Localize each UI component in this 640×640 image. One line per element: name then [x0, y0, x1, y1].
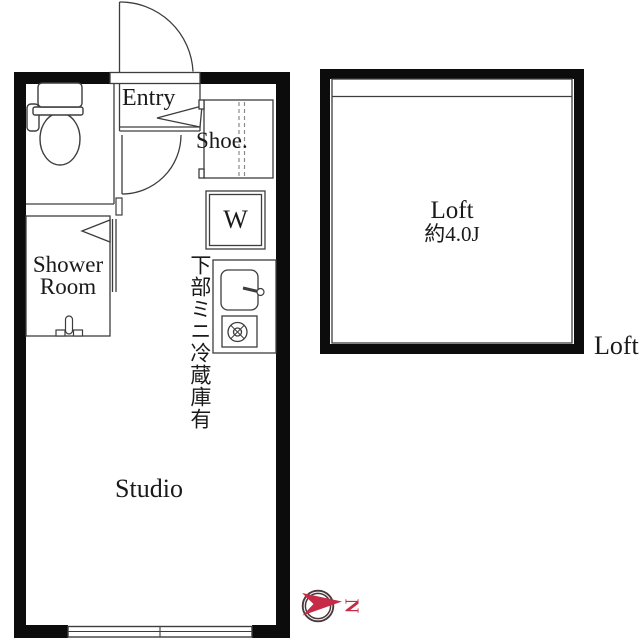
shower-direction-arrow-icon — [82, 220, 110, 242]
compass-icon: N — [302, 591, 363, 622]
wall-top-left — [14, 72, 110, 84]
shower-mixer — [66, 316, 73, 334]
toilet-tank — [38, 83, 82, 107]
loft-wall-right — [574, 69, 584, 354]
loft-name: Loft — [372, 198, 532, 223]
loft-outside-label: Loft — [594, 332, 639, 359]
compass-arrow — [302, 593, 342, 616]
shower-room-label: Shower Room — [26, 254, 110, 298]
floorplan-canvas: N — [0, 0, 640, 640]
shoe-jamb-bottom — [199, 169, 204, 178]
entry-doorway-opening — [110, 73, 200, 84]
interior-door-swing-arc — [122, 135, 181, 194]
faucet-knob — [257, 289, 264, 296]
shower-knob-left — [56, 330, 65, 336]
wall-right — [276, 72, 290, 638]
fridge-note-label: 下部ミニ冷蔵庫有 — [188, 254, 210, 430]
studio-label: Studio — [89, 475, 209, 502]
window-icon — [68, 627, 252, 638]
front-door-swing-arc — [120, 2, 194, 72]
loft-wall-left — [320, 69, 330, 354]
wall-bottom-left — [14, 625, 68, 638]
shower-knob-right — [74, 330, 83, 336]
loft-wall-bottom — [320, 344, 584, 354]
washer-label: W — [206, 206, 265, 233]
floorplan: N Entry Shoe. W Shower Room 下部ミニ冷蔵庫有 Stu… — [0, 0, 640, 640]
door-jamb-stub — [116, 198, 122, 215]
interior-door-icon — [122, 135, 181, 194]
loft-room-label: Loft 約4.0J — [372, 198, 532, 246]
loft-area: 約4.0J — [372, 223, 532, 246]
kitchen-counter — [213, 260, 276, 353]
front-door-icon — [120, 2, 194, 72]
toilet-icon — [27, 83, 83, 165]
shoe-jamb-top — [199, 100, 204, 109]
wall-left — [14, 72, 26, 638]
wall-bottom-right — [252, 625, 290, 638]
compass-north-letter: N — [341, 599, 363, 614]
faucet-lever — [243, 288, 258, 292]
toilet-seat-hinge — [33, 107, 83, 115]
loft-wall-top — [320, 69, 584, 79]
shoe-closet-label: Shoe. — [196, 129, 248, 153]
shower-fixture-icon — [56, 316, 83, 336]
stove-icon — [222, 316, 257, 347]
entry-label: Entry — [122, 86, 175, 111]
toilet-bowl — [40, 113, 80, 165]
shower-room-label-line2: Room — [40, 274, 96, 299]
